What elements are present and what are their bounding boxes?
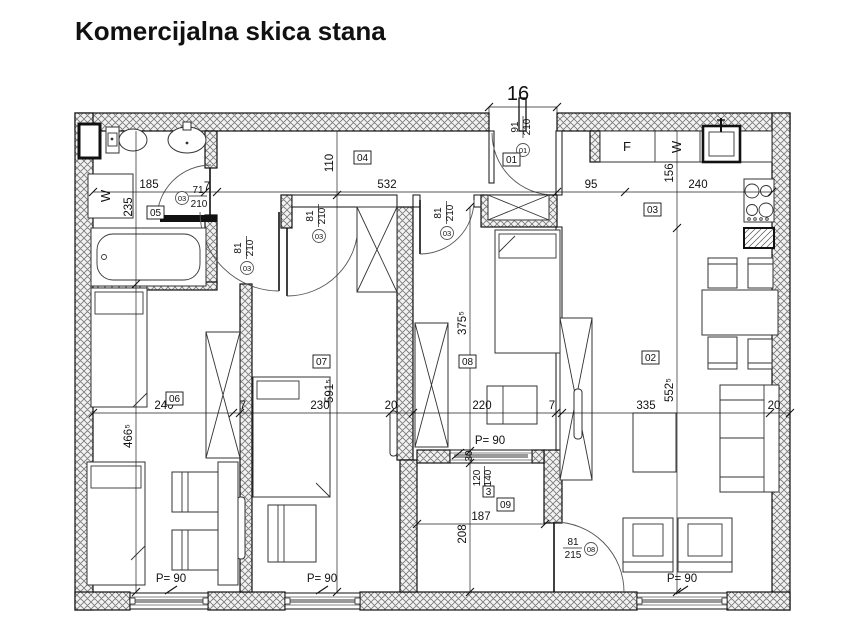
dim-kitchen-width: 240: [688, 179, 707, 191]
svg-text:04: 04: [357, 153, 369, 164]
svg-text:210: 210: [445, 204, 456, 221]
coffee-table: [633, 413, 676, 472]
dining-chair: [748, 258, 773, 288]
svg-text:210: 210: [245, 239, 256, 256]
svg-text:05: 05: [150, 208, 162, 219]
bed: [495, 230, 560, 353]
svg-text:210: 210: [317, 207, 328, 224]
room06-door-label: 81 210 03: [233, 236, 256, 275]
svg-text:71: 71: [192, 185, 204, 196]
parapet-room06: P= 90: [156, 573, 186, 585]
floor-plan-page: Komercijalna skica stana: [0, 0, 868, 640]
dim-living-width: 335: [636, 400, 655, 412]
window-room07: [285, 593, 360, 609]
window-room06: [130, 593, 208, 609]
dim-bath-height: 235: [123, 197, 135, 216]
svg-text:08: 08: [462, 357, 474, 368]
svg-text:81: 81: [233, 242, 244, 254]
window-type-label: 3: [483, 486, 494, 498]
entrance-door-label: 91 210 01: [510, 116, 533, 157]
kitchen-washer-label: W: [669, 140, 684, 153]
parapet-living: P= 90: [667, 573, 697, 585]
window-width: 120: [472, 469, 483, 486]
room08-furniture: [487, 230, 560, 424]
svg-text:3: 3: [486, 487, 492, 498]
svg-text:81: 81: [305, 210, 316, 222]
svg-text:06: 06: [169, 394, 181, 405]
dim-kitchen-depth: 156: [664, 163, 676, 182]
dining-chair: [708, 337, 737, 369]
parapet-room07: P= 90: [307, 573, 337, 585]
room-label-03: 03: [644, 203, 661, 216]
apartment-number: 16: [507, 83, 529, 105]
room-label-02: 02: [642, 351, 659, 364]
dim-hall-width: 532: [377, 179, 396, 191]
wardrobe-room07: [357, 207, 397, 292]
svg-text:210: 210: [522, 118, 533, 135]
wardrobe-room06: [206, 332, 240, 458]
toilet: [106, 127, 147, 153]
dim-wall-0607: 7: [240, 400, 246, 412]
armchair: [678, 518, 732, 572]
dim-room07-height: 591⁵: [324, 379, 336, 403]
wardrobe-vestibule: [481, 195, 557, 227]
dim-hall-height: 110: [324, 154, 336, 172]
chair: [172, 530, 218, 570]
room-label-08: 08: [459, 355, 476, 368]
bed: [91, 288, 147, 407]
desk: [218, 462, 238, 585]
svg-text:03: 03: [647, 205, 659, 216]
room-label-04: 04: [354, 151, 371, 164]
bathtub: [91, 228, 206, 286]
kitchen-fixtures: [600, 118, 774, 248]
svg-text:215: 215: [565, 550, 582, 561]
dim-living-height: 552⁵: [664, 378, 676, 402]
svg-text:210: 210: [191, 199, 208, 210]
dining-chair: [708, 258, 737, 288]
bathroom-fixtures: [79, 122, 206, 286]
svg-text:08: 08: [587, 545, 595, 554]
svg-text:81: 81: [567, 537, 579, 548]
desk: [487, 386, 537, 424]
svg-text:81: 81: [433, 207, 444, 219]
balcony-door-label: 81 215 08: [563, 537, 598, 561]
dim-room08-width: 220: [472, 400, 491, 412]
room-label-06: 06: [166, 392, 183, 405]
room07-door-label: 81 210 03: [305, 204, 328, 243]
svg-text:01: 01: [506, 155, 518, 166]
fridge-label: F: [623, 139, 631, 154]
dim-window-wall: 30: [464, 450, 475, 462]
window-living: [637, 593, 727, 609]
svg-text:09: 09: [500, 500, 512, 511]
room-label-09: 09: [497, 498, 514, 511]
dim-room08-height: 375⁵: [457, 311, 469, 335]
dim-wall-0708: 20: [385, 400, 398, 412]
room-label-01: 01: [503, 153, 520, 166]
dim-room06-height: 466⁵: [123, 424, 135, 448]
room08-door-label: 81 210 03: [433, 201, 456, 240]
armchair: [623, 518, 673, 572]
svg-text:07: 07: [316, 357, 328, 368]
floor-plan-drawing: Komercijalna skica stana: [0, 0, 868, 640]
parapet-balcony-window: P= 90: [475, 435, 505, 447]
room-label-07: 07: [313, 355, 330, 368]
dim-balcony-height: 208: [457, 524, 469, 543]
page-title: Komercijalna skica stana: [75, 16, 386, 46]
bathroom-door-label: 03 71 210: [176, 185, 208, 210]
dim-wall-08liv: 7: [549, 400, 555, 412]
dim-bath-wall: 7: [204, 181, 210, 193]
chair: [268, 505, 316, 562]
svg-text:02: 02: [645, 353, 657, 364]
svg-text:03: 03: [315, 232, 323, 241]
dim-outer-wall: 20: [768, 400, 781, 412]
dim-bath-width: 185: [139, 179, 158, 191]
bed: [253, 377, 330, 497]
stove: [744, 179, 774, 222]
svg-text:03: 03: [178, 194, 186, 203]
dim-kitchen-offset: 95: [585, 179, 598, 191]
chair: [172, 472, 218, 512]
dining-chair: [748, 339, 772, 369]
svg-text:03: 03: [443, 229, 451, 238]
dining-table: [702, 290, 778, 335]
window-balcony: [450, 450, 532, 463]
window-height: 140: [483, 469, 494, 486]
svg-text:91: 91: [510, 121, 521, 133]
wardrobe-room08: [415, 323, 448, 447]
dim-balcony-width: 187: [471, 511, 490, 523]
bath-washer-label: W: [98, 189, 113, 202]
svg-text:03: 03: [243, 264, 251, 273]
room-label-05: 05: [147, 206, 164, 219]
living-furniture: [623, 258, 779, 572]
